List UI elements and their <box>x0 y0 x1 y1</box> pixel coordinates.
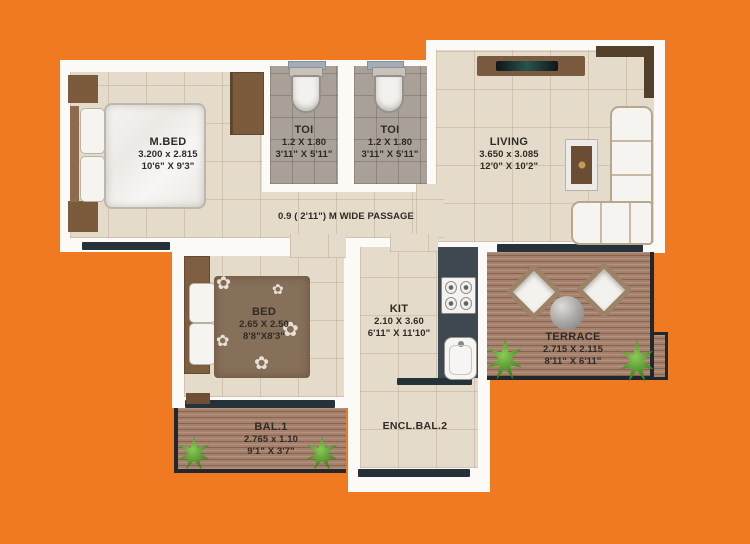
flower-icon: ✿ <box>254 354 269 372</box>
flower-icon: ✿ <box>216 276 231 292</box>
room-dimensions-ft: 3'11" X 5'11" <box>264 149 344 161</box>
table-knob <box>578 162 585 169</box>
room-name: ENCL.BAL.2 <box>345 420 485 433</box>
room-dimensions-m: 2.10 X 3.60 <box>329 316 469 328</box>
sink-icon <box>444 337 477 380</box>
room-label-toilet-1: TOI 1.2 X 1.80 3'11" X 5'11" <box>264 124 344 161</box>
room-name: LIVING <box>439 136 579 149</box>
room-dimensions-m: 2.65 X 2.50 <box>194 319 334 331</box>
room-name: BAL.1 <box>191 421 351 434</box>
room-dimensions-m: 2.765 x 1.10 <box>191 434 351 446</box>
bed-headboard-master <box>70 106 79 202</box>
terrace-round-table <box>550 296 584 330</box>
passage-label: 0.9 ( 2'11") M WIDE PASSAGE <box>256 211 436 223</box>
opening-passage-kitchen <box>390 234 438 252</box>
toilet-bowl <box>291 75 321 113</box>
room-dimensions-ft: 10'6" X 9'3" <box>98 161 238 173</box>
room-dimensions-m: 1.2 X 1.80 <box>350 137 430 149</box>
burner-icon <box>445 281 457 294</box>
wardrobe-master <box>230 72 264 135</box>
dresser-bedroom <box>186 393 210 404</box>
room-dimensions-ft: 6'11" X 11'10" <box>329 328 469 340</box>
room-dimensions-m: 3.200 x 2.815 <box>98 149 238 161</box>
room-dimensions-m: 2.715 X 2.115 <box>503 344 643 356</box>
room-dimensions-ft: 9'1" X 3'7" <box>191 446 351 458</box>
tv-icon <box>496 61 558 71</box>
room-name: TOI <box>264 124 344 137</box>
nightstand-top <box>68 75 98 103</box>
room-label-encl-balcony-2: ENCL.BAL.2 <box>345 420 485 433</box>
nightstand-bottom <box>68 201 98 232</box>
room-dimensions-ft: 3'11" X 5'11" <box>350 149 430 161</box>
room-dimensions-ft: 8'8"X8'3" <box>194 331 334 343</box>
room-label-balcony-1: BAL.1 2.765 x 1.10 9'1" X 3'7" <box>191 421 351 458</box>
window-sill-master-bedroom <box>82 242 170 250</box>
room-label-kitchen: KIT 2.10 X 3.60 6'11" X 11'10" <box>329 303 469 340</box>
window-sill-encl-balcony <box>358 469 470 477</box>
planter-ledge-right <box>644 46 654 98</box>
room-name: KIT <box>329 303 469 316</box>
passage-text: 0.9 ( 2'11") M WIDE PASSAGE <box>256 211 436 223</box>
room-label-living: LIVING 3.650 x 3.085 12'0" X 10'2" <box>439 136 579 173</box>
room-label-terrace: TERRACE 2.715 X 2.115 8'11" X 6'11" <box>503 331 643 368</box>
room-dimensions-m: 1.2 X 1.80 <box>264 137 344 149</box>
room-name: TERRACE <box>503 331 643 344</box>
sofa-bottom-arm <box>571 201 653 245</box>
room-dimensions-ft: 8'11" X 6'11" <box>503 356 643 368</box>
room-name: TOI <box>350 124 430 137</box>
room-label-toilet-2: TOI 1.2 X 1.80 3'11" X 5'11" <box>350 124 430 161</box>
room-label-master-bedroom: M.BED 3.200 x 2.815 10'6" X 9'3" <box>98 136 238 173</box>
room-name: M.BED <box>98 136 238 149</box>
room-name: BED <box>194 306 334 319</box>
terrace-deck-extension <box>654 332 668 380</box>
room-dimensions-ft: 12'0" X 10'2" <box>439 161 579 173</box>
toilet-bowl <box>374 75 404 113</box>
sink-basin <box>449 345 472 375</box>
slider-sill-living-terrace <box>497 244 643 252</box>
opening-passage-bedroom <box>290 234 346 258</box>
floor-plan: ✿ ✿ ✿ ✿ ✿ M.BED 3.200 x 2.815 10'6" X 9'… <box>0 0 750 544</box>
room-dimensions-m: 3.650 x 3.085 <box>439 149 579 161</box>
room-label-bedroom: BED 2.65 X 2.50 8'8"X8'3" <box>194 306 334 343</box>
burner-icon <box>460 281 472 294</box>
flower-icon: ✿ <box>272 282 284 296</box>
